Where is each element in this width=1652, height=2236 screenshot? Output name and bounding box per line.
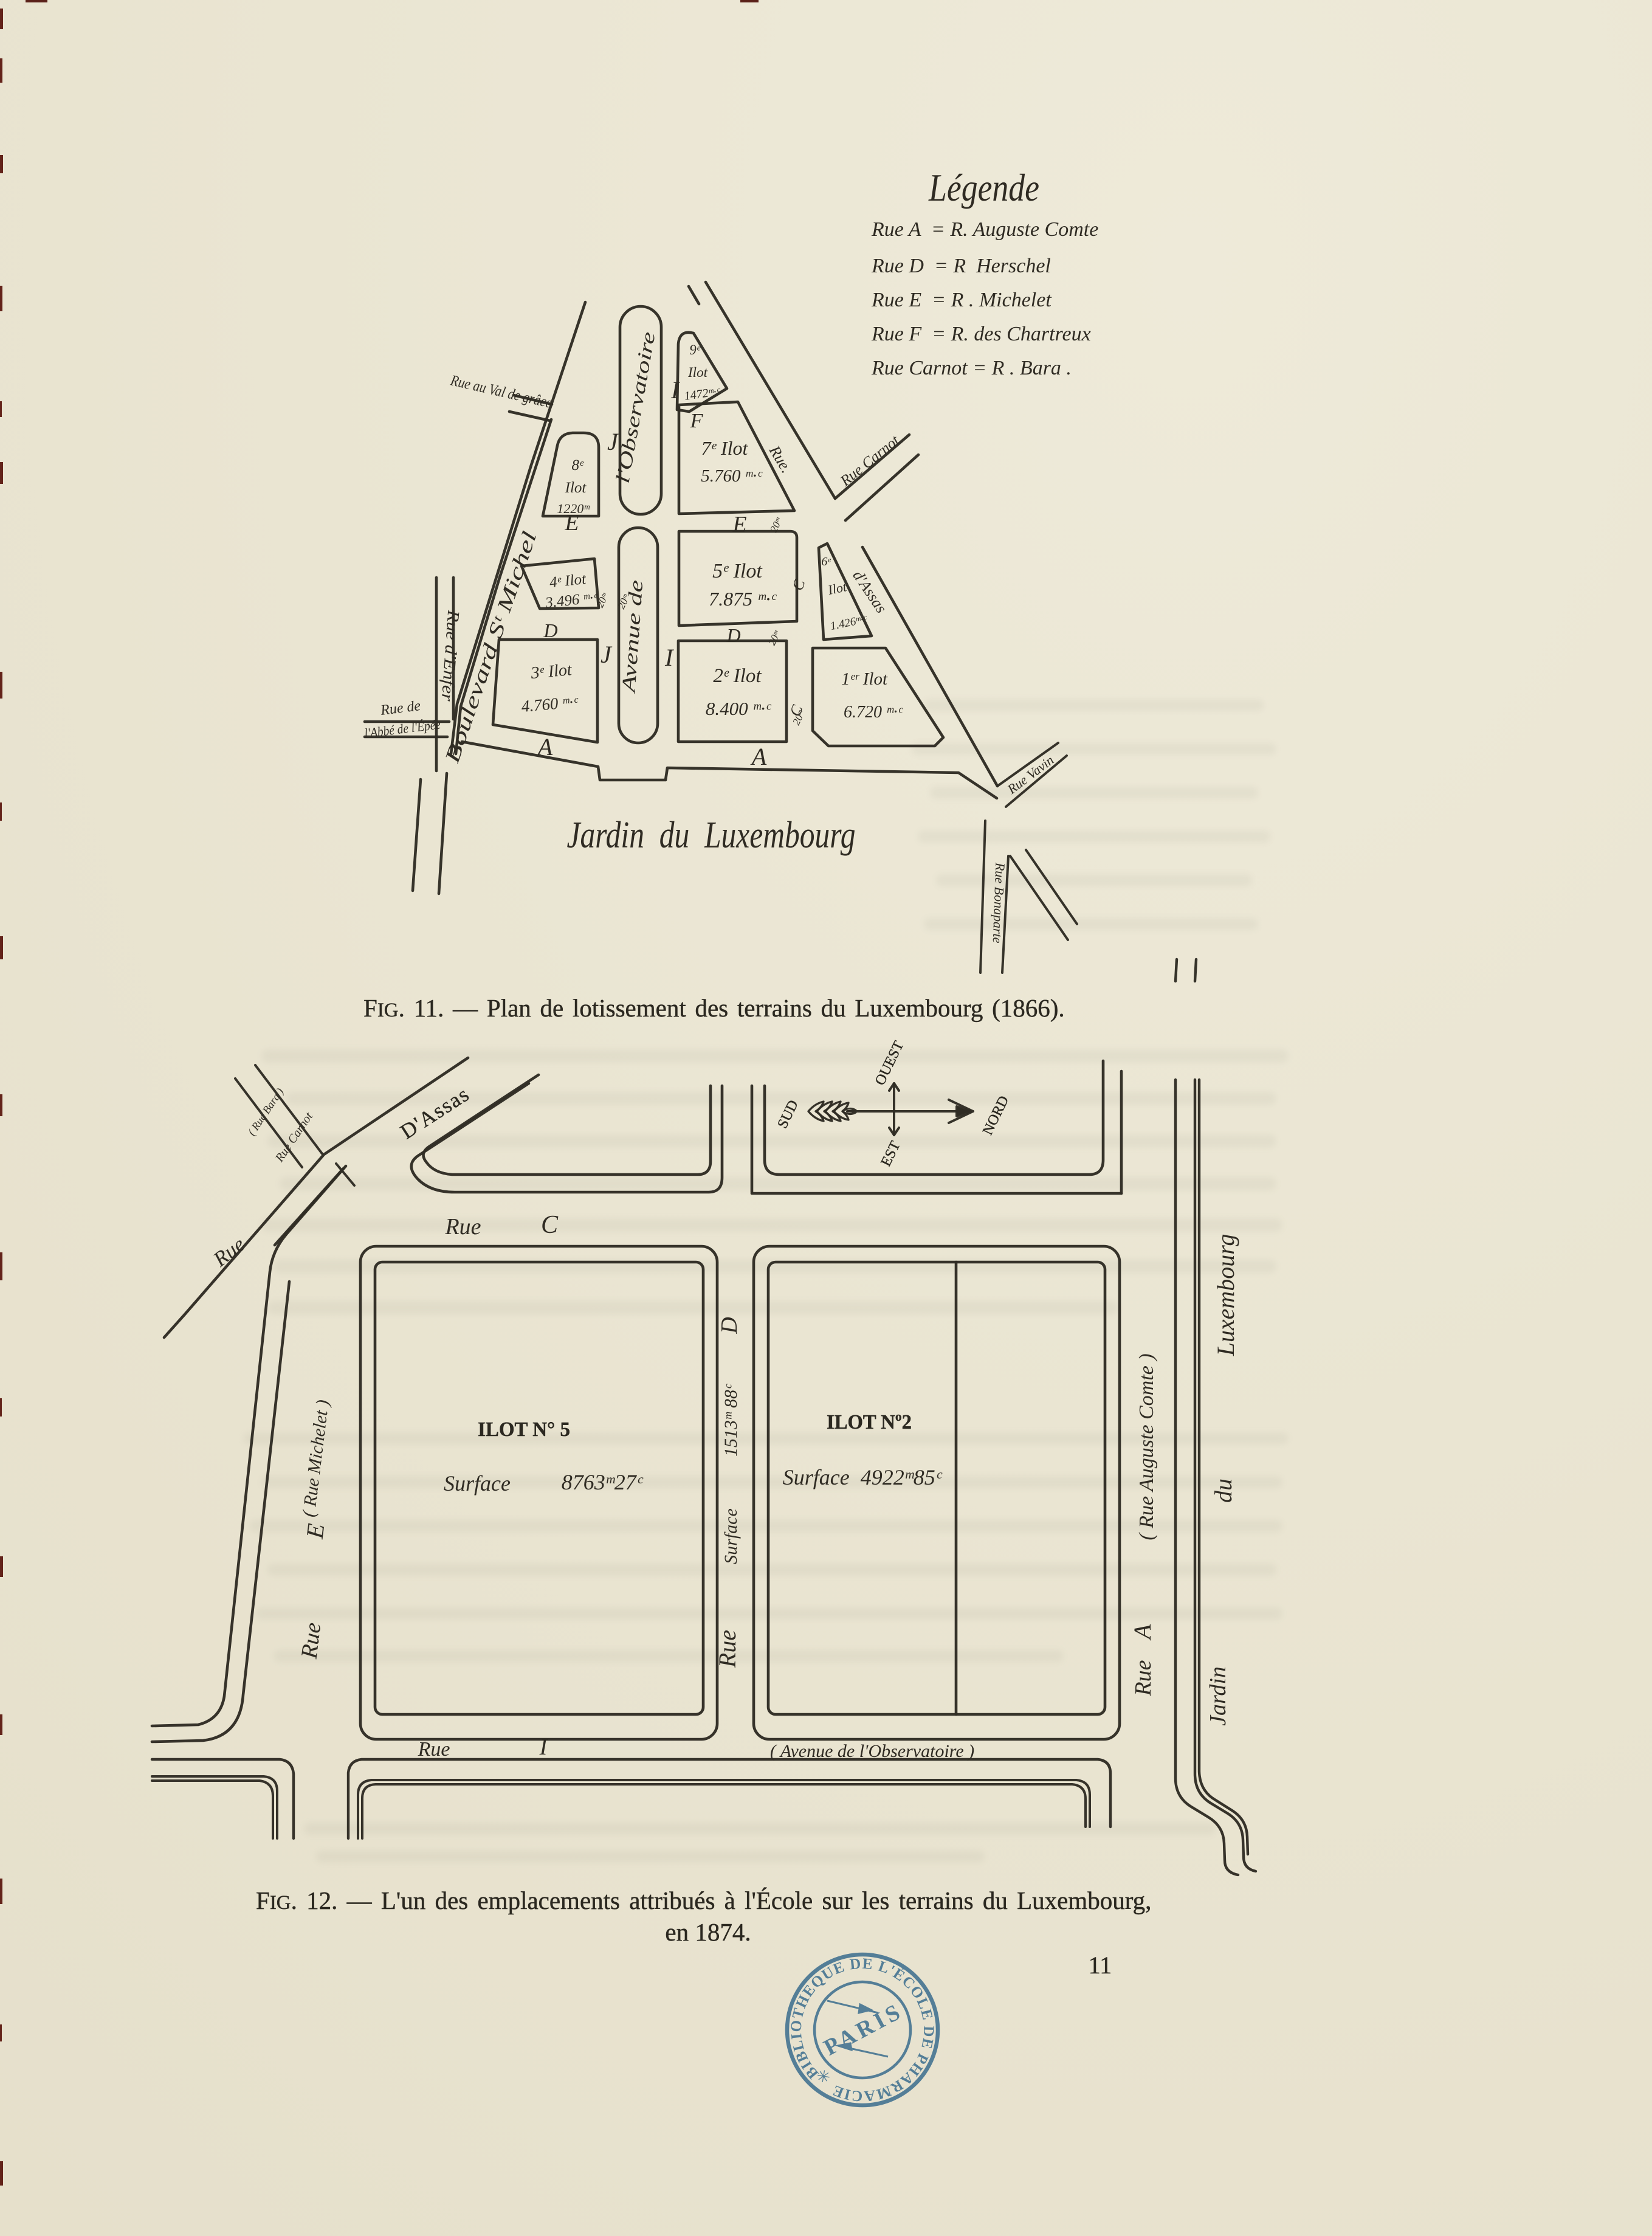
svg-text:FIG. 11. — Plan de lotissement: FIG. 11. — Plan de lotissement des terra… [363, 994, 1065, 1022]
svg-text:D: D [543, 619, 557, 641]
svg-text:Surface: Surface [721, 1508, 741, 1564]
svg-text:ILOT N° 5: ILOT N° 5 [478, 1418, 570, 1441]
svg-text:D: D [726, 624, 740, 646]
svg-text:D: D [717, 1317, 742, 1334]
svg-text:2ᵉ Ilot: 2ᵉ Ilot [713, 665, 762, 687]
svg-text:Rue: Rue [297, 1621, 326, 1661]
svg-text:Surface 4922ᵐ85ᶜ: Surface 4922ᵐ85ᶜ [783, 1465, 943, 1489]
svg-text:6ᵉ: 6ᵉ [821, 555, 831, 568]
svg-text:Rue Carnot = R . Bara .: Rue Carnot = R . Bara . [871, 357, 1072, 379]
svg-text:J: J [601, 641, 613, 668]
svg-text:Rue: Rue [444, 1214, 481, 1240]
svg-text:Rue F = R. des Chartreux: Rue F = R. des Chartreux [871, 323, 1091, 345]
svg-text:5ᵉ Ilot: 5ᵉ Ilot [712, 560, 763, 582]
svg-text:en 1874.: en 1874. [665, 1918, 751, 1946]
svg-text:A: A [750, 743, 767, 770]
svg-text:11: 11 [1089, 1951, 1112, 1979]
svg-text:Ilot: Ilot [565, 480, 587, 496]
svg-text:5.760 ᵐ·ᶜ: 5.760 ᵐ·ᶜ [701, 466, 763, 486]
svg-text:ILOT Nº2: ILOT Nº2 [827, 1411, 912, 1434]
svg-text:Jardin du Luxembourg: Jardin du Luxembourg [567, 815, 856, 856]
svg-text:1ᵉʳ Ilot: 1ᵉʳ Ilot [841, 669, 888, 689]
svg-text:7ᵉ Ilot: 7ᵉ Ilot [701, 437, 749, 459]
svg-text:8.400 ᵐ·ᶜ: 8.400 ᵐ·ᶜ [706, 698, 772, 719]
svg-text:9ᵉ: 9ᵉ [689, 342, 701, 357]
svg-text:Luxembourg: Luxembourg [1212, 1234, 1239, 1357]
svg-text:Rue A = R. Auguste Comte: Rue A = R. Auguste Comte [871, 218, 1098, 241]
svg-text:FIG. 12. — L'un des emplacemen: FIG. 12. — L'un des emplacements attribu… [256, 1886, 1151, 1914]
svg-text:Rue Bonaparte: Rue Bonaparte [990, 862, 1008, 944]
svg-text:( Rue Auguste Comte ): ( Rue Auguste Comte ) [1135, 1353, 1158, 1540]
svg-text:I: I [539, 1734, 549, 1760]
svg-text:7.875 ᵐ·ᶜ: 7.875 ᵐ·ᶜ [709, 588, 777, 610]
svg-text:Rue: Rue [1131, 1660, 1156, 1696]
svg-text:Rue: Rue [418, 1738, 450, 1761]
svg-text:Rue: Rue [714, 1630, 741, 1668]
svg-text:Ilot: Ilot [687, 365, 708, 380]
svg-text:J: J [607, 428, 619, 455]
svg-text:3ᵉ Ilot: 3ᵉ Ilot [529, 660, 573, 683]
svg-text:I: I [664, 644, 674, 671]
svg-text:E: E [732, 512, 746, 537]
svg-text:A: A [536, 733, 553, 761]
svg-text:8763ᵐ27ᶜ: 8763ᵐ27ᶜ [562, 1470, 644, 1494]
svg-text:C: C [541, 1211, 559, 1239]
svg-text:Surface: Surface [444, 1471, 511, 1496]
svg-text:A: A [1129, 1624, 1156, 1641]
svg-text:Rue E = R . Michelet: Rue E = R . Michelet [871, 289, 1052, 311]
svg-text:du: du [1210, 1479, 1237, 1503]
svg-text:6.720 ᵐ·ᶜ: 6.720 ᵐ·ᶜ [844, 703, 904, 722]
svg-text:8ᵉ: 8ᵉ [571, 457, 584, 474]
svg-text:Rue D = R Herschel: Rue D = R Herschel [871, 255, 1051, 277]
svg-text:Jardin: Jardin [1205, 1666, 1231, 1726]
svg-text:1220ᵐ: 1220ᵐ [557, 501, 590, 516]
svg-text:1513ᵐ 88ᶜ: 1513ᵐ 88ᶜ [721, 1384, 741, 1457]
svg-text:F: F [690, 410, 704, 432]
svg-text:Légende: Légende [928, 166, 1039, 209]
